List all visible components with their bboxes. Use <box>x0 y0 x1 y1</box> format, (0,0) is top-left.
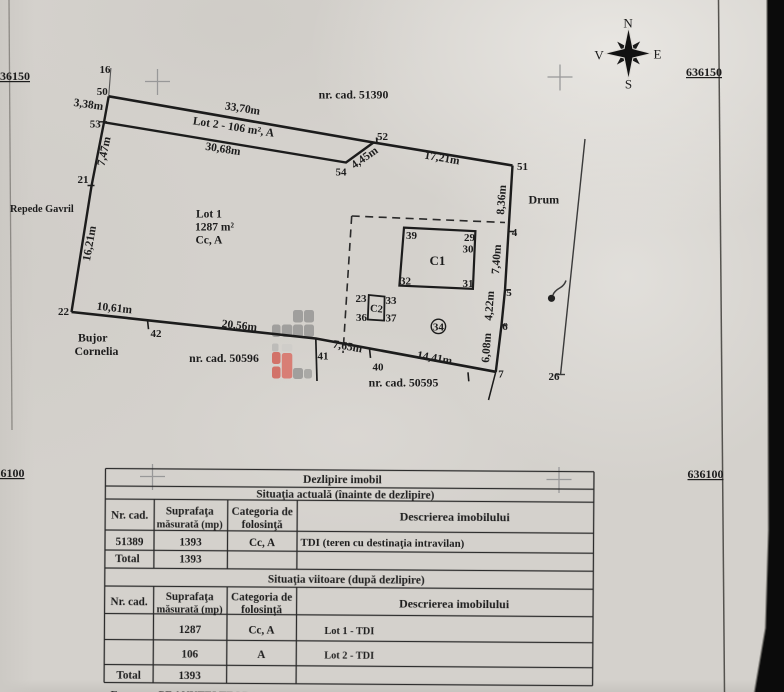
svg-text:S: S <box>625 77 632 92</box>
svg-text:636150: 636150 <box>686 65 722 79</box>
svg-text:Lot 2 - TDI: Lot 2 - TDI <box>324 650 374 661</box>
svg-text:106: 106 <box>181 649 198 661</box>
svg-text:C2: C2 <box>369 303 383 315</box>
svg-text:7: 7 <box>498 369 504 381</box>
svg-text:52: 52 <box>377 131 389 143</box>
svg-text:41: 41 <box>318 351 329 363</box>
svg-text:nr. cad. 50595: nr. cad. 50595 <box>369 376 439 390</box>
svg-text:7,47m: 7,47m <box>96 135 114 167</box>
svg-text:21: 21 <box>78 174 89 186</box>
svg-text:1287 m²: 1287 m² <box>195 222 234 234</box>
svg-text:16: 16 <box>100 64 112 76</box>
svg-text:folosinţă: folosinţă <box>241 604 283 616</box>
svg-text:22: 22 <box>58 306 70 318</box>
svg-text:Lot 1 - TDI: Lot 1 - TDI <box>324 626 374 637</box>
svg-text:folosinţă: folosinţă <box>242 519 284 531</box>
svg-text:Repede Gavril: Repede Gavril <box>10 204 74 215</box>
svg-text:33,70m: 33,70m <box>224 100 261 118</box>
svg-text:Suprafaţa: Suprafaţa <box>166 505 214 517</box>
svg-text:A: A <box>257 649 265 661</box>
svg-text:53: 53 <box>90 119 102 131</box>
svg-text:50: 50 <box>97 86 109 98</box>
svg-text:Cornelia: Cornelia <box>75 344 119 358</box>
svg-text:4: 4 <box>512 227 518 239</box>
svg-text:636100: 636100 <box>0 466 25 480</box>
svg-text:Total: Total <box>116 670 141 682</box>
svg-text:7,40m: 7,40m <box>490 244 504 275</box>
svg-text:TDI (teren cu destinaţia intra: TDI (teren cu destinaţia intravilan) <box>300 537 464 550</box>
svg-text:5: 5 <box>506 287 512 299</box>
svg-text:54: 54 <box>336 167 348 179</box>
svg-text:1393: 1393 <box>179 536 202 548</box>
svg-text:636150: 636150 <box>0 69 30 83</box>
svg-text:23: 23 <box>356 293 368 305</box>
svg-text:17,21m: 17,21m <box>424 150 461 168</box>
svg-text:37: 37 <box>386 313 398 325</box>
svg-text:1287: 1287 <box>179 624 202 636</box>
svg-text:E: E <box>654 47 662 62</box>
svg-text:39: 39 <box>406 230 418 242</box>
svg-text:Categoria de: Categoria de <box>231 591 292 603</box>
svg-text:Lot 1: Lot 1 <box>196 209 222 221</box>
svg-text:Suprafaţa: Suprafaţa <box>166 591 214 603</box>
svg-text:6,08m: 6,08m <box>480 332 494 363</box>
svg-text:N: N <box>623 16 633 31</box>
svg-text:6: 6 <box>502 321 508 333</box>
svg-text:32: 32 <box>400 276 412 288</box>
svg-text:Bujor: Bujor <box>78 331 108 345</box>
svg-text:8,36m: 8,36m <box>495 184 509 215</box>
svg-text:Situaţia actuală (înainte de d: Situaţia actuală (înainte de dezlipire) <box>256 489 434 502</box>
svg-text:Nr. cad.: Nr. cad. <box>110 596 147 608</box>
svg-text:51389: 51389 <box>115 536 143 548</box>
svg-text:29: 29 <box>464 232 476 244</box>
svg-text:Categoria de: Categoria de <box>232 506 293 518</box>
svg-text:Situaţia viitoare (după dezlip: Situaţia viitoare (după dezlipire) <box>268 574 425 587</box>
svg-text:36: 36 <box>356 312 368 324</box>
svg-text:3,38m: 3,38m <box>73 97 105 113</box>
svg-text:nr. cad. 51390: nr. cad. 51390 <box>319 88 389 102</box>
svg-text:nr. cad. 50596: nr. cad. 50596 <box>189 351 259 365</box>
svg-text:Cc, A: Cc, A <box>248 624 274 636</box>
svg-text:30: 30 <box>463 244 475 256</box>
svg-text:42: 42 <box>151 328 163 340</box>
svg-text:Total: Total <box>115 553 140 565</box>
svg-text:Dezlipire imobil: Dezlipire imobil <box>303 474 382 487</box>
svg-text:Nr. cad.: Nr. cad. <box>111 510 148 522</box>
svg-text:26: 26 <box>549 371 561 383</box>
svg-text:20,56m: 20,56m <box>221 318 258 334</box>
svg-text:31: 31 <box>463 278 474 290</box>
svg-text:Descrierea imobilului: Descrierea imobilului <box>399 596 510 611</box>
svg-text:Descrierea imobilului: Descrierea imobilului <box>400 509 511 524</box>
svg-text:14,41m: 14,41m <box>416 350 453 368</box>
svg-text:636100: 636100 <box>688 467 724 481</box>
svg-text:7,65m: 7,65m <box>332 339 364 356</box>
svg-text:Drum: Drum <box>529 193 560 207</box>
svg-text:51: 51 <box>517 161 528 173</box>
svg-text:1393: 1393 <box>178 670 201 682</box>
svg-text:Cc, A: Cc, A <box>196 235 224 247</box>
svg-text:V: V <box>594 48 604 63</box>
svg-text:34: 34 <box>433 321 445 333</box>
svg-text:1393: 1393 <box>179 553 202 565</box>
svg-text:măsurată (mp): măsurată (mp) <box>157 519 223 530</box>
svg-text:40: 40 <box>373 362 385 374</box>
svg-text:măsurată (mp): măsurată (mp) <box>156 604 222 615</box>
svg-text:4,22m: 4,22m <box>483 290 497 321</box>
svg-text:Cc, A: Cc, A <box>249 537 275 549</box>
svg-text:33: 33 <box>386 295 398 307</box>
svg-text:C1: C1 <box>430 253 446 268</box>
